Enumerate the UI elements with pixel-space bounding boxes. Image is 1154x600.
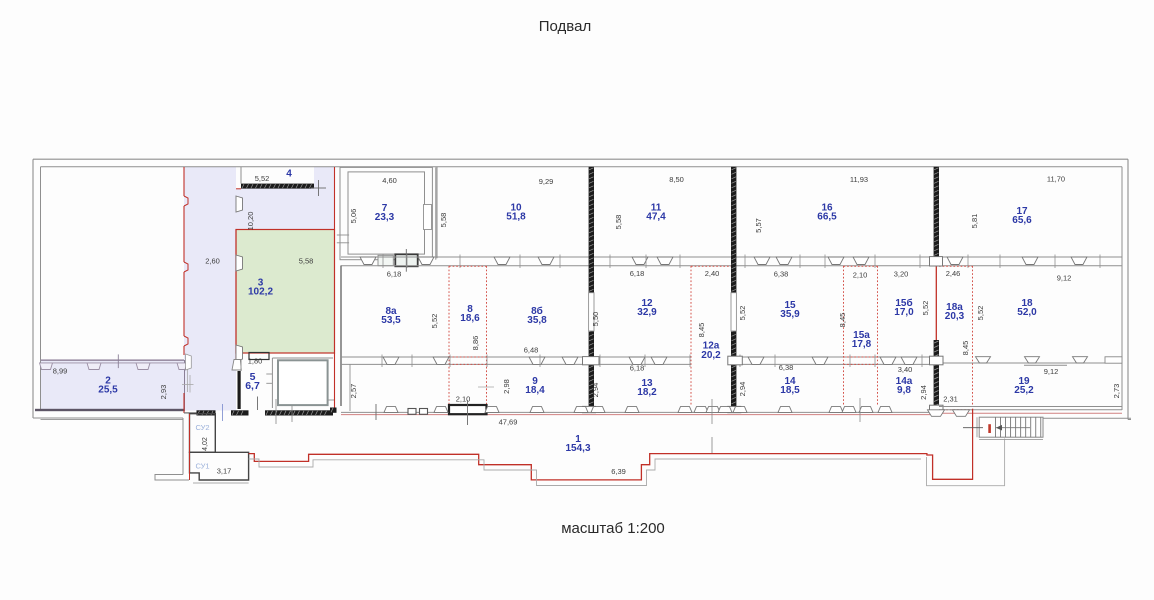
svg-text:66,5: 66,5 <box>817 212 837 223</box>
svg-text:11,93: 11,93 <box>850 175 868 184</box>
svg-text:8,45: 8,45 <box>838 313 847 328</box>
svg-text:2,10: 2,10 <box>456 395 471 404</box>
svg-text:2,31: 2,31 <box>943 395 958 404</box>
svg-text:32,9: 32,9 <box>637 307 657 318</box>
svg-text:3,17: 3,17 <box>217 467 232 476</box>
svg-text:6,38: 6,38 <box>779 363 794 372</box>
svg-text:6,18: 6,18 <box>387 270 402 279</box>
svg-text:102,2: 102,2 <box>248 287 273 298</box>
svg-text:9,12: 9,12 <box>1044 367 1059 376</box>
svg-text:18,4: 18,4 <box>525 385 545 396</box>
svg-text:9,8: 9,8 <box>897 385 911 396</box>
svg-text:2,94: 2,94 <box>738 382 747 397</box>
svg-text:2,73: 2,73 <box>1112 384 1121 399</box>
svg-text:6,18: 6,18 <box>630 269 645 278</box>
svg-text:17,0: 17,0 <box>894 307 914 318</box>
svg-text:53,5: 53,5 <box>381 315 401 326</box>
svg-text:8,99: 8,99 <box>53 367 68 376</box>
svg-text:5,81: 5,81 <box>970 214 979 229</box>
svg-text:6,7: 6,7 <box>245 380 260 392</box>
svg-text:8,50: 8,50 <box>669 175 684 184</box>
svg-text:5,50: 5,50 <box>591 312 600 327</box>
svg-text:масштаб 1:200: масштаб 1:200 <box>561 520 665 537</box>
svg-text:18,6: 18,6 <box>460 313 480 324</box>
svg-text:5,58: 5,58 <box>439 213 448 228</box>
svg-text:2,10: 2,10 <box>853 271 868 280</box>
svg-text:2,94: 2,94 <box>591 383 600 398</box>
svg-text:154,3: 154,3 <box>565 443 590 454</box>
svg-text:35,8: 35,8 <box>527 315 547 326</box>
svg-text:6,39: 6,39 <box>611 467 626 476</box>
svg-text:10,20: 10,20 <box>246 212 255 231</box>
svg-text:8,45: 8,45 <box>697 323 706 338</box>
svg-text:9,29: 9,29 <box>539 177 554 186</box>
svg-text:35,9: 35,9 <box>780 309 800 320</box>
svg-text:25,2: 25,2 <box>1014 385 1034 396</box>
svg-text:8,86: 8,86 <box>471 336 480 351</box>
svg-text:СУ1: СУ1 <box>195 462 209 471</box>
svg-text:17,8: 17,8 <box>852 339 872 350</box>
svg-text:3,20: 3,20 <box>894 270 909 279</box>
svg-text:47,4: 47,4 <box>646 212 666 223</box>
svg-text:23,3: 23,3 <box>375 212 395 223</box>
svg-text:4,02: 4,02 <box>202 437 209 451</box>
svg-text:5,52: 5,52 <box>738 306 747 321</box>
svg-text:5,06: 5,06 <box>349 209 358 224</box>
svg-text:20,2: 20,2 <box>701 350 721 361</box>
svg-text:65,6: 65,6 <box>1012 215 1032 226</box>
svg-text:5,52: 5,52 <box>976 306 985 321</box>
svg-text:25,5: 25,5 <box>98 385 118 396</box>
svg-text:5,58: 5,58 <box>299 257 314 266</box>
svg-text:5,52: 5,52 <box>921 301 930 316</box>
svg-text:2,98: 2,98 <box>502 379 511 394</box>
svg-text:5,57: 5,57 <box>754 218 763 233</box>
svg-text:3,40: 3,40 <box>898 365 913 374</box>
svg-text:51,8: 51,8 <box>506 212 526 223</box>
svg-text:5,52: 5,52 <box>255 174 270 183</box>
svg-text:52,0: 52,0 <box>1017 307 1037 318</box>
svg-text:6,38: 6,38 <box>774 270 789 279</box>
svg-text:4,60: 4,60 <box>382 176 397 185</box>
svg-text:20,3: 20,3 <box>945 311 965 322</box>
svg-text:Подвал: Подвал <box>539 18 591 35</box>
svg-text:9,12: 9,12 <box>1057 274 1072 283</box>
svg-text:4: 4 <box>286 169 292 180</box>
svg-text:2,94: 2,94 <box>919 385 928 400</box>
svg-text:47,69: 47,69 <box>499 418 518 427</box>
svg-text:2,46: 2,46 <box>946 269 961 278</box>
svg-text:2,93: 2,93 <box>159 385 168 400</box>
svg-text:СУ2: СУ2 <box>195 423 209 432</box>
svg-text:2,57: 2,57 <box>349 384 358 399</box>
svg-text:8,45: 8,45 <box>961 341 970 356</box>
svg-text:18,2: 18,2 <box>637 387 657 398</box>
svg-text:2,60: 2,60 <box>205 257 220 266</box>
svg-text:6,48: 6,48 <box>524 346 539 355</box>
svg-text:5,52: 5,52 <box>430 314 439 329</box>
svg-text:11,70: 11,70 <box>1047 175 1065 184</box>
svg-text:5,58: 5,58 <box>614 215 623 230</box>
svg-text:18,5: 18,5 <box>780 385 800 396</box>
svg-text:1,80: 1,80 <box>248 357 263 366</box>
svg-text:2,40: 2,40 <box>705 269 720 278</box>
